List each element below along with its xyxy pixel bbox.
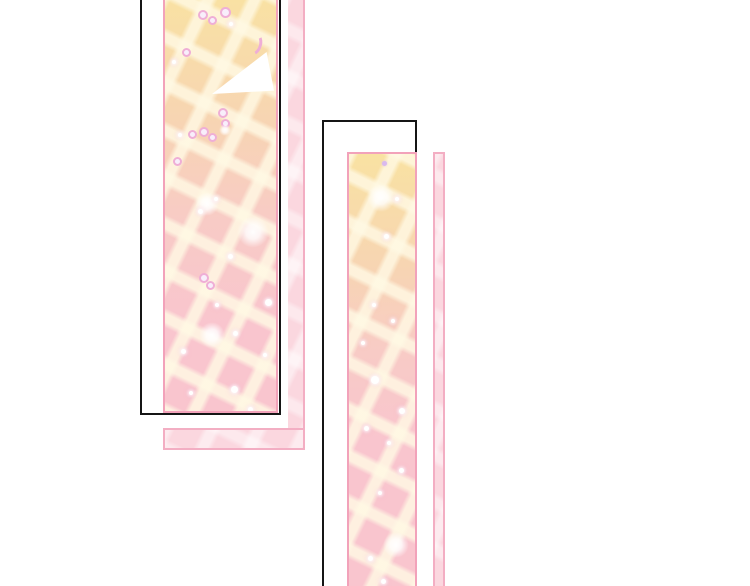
sparkle-icon [248, 407, 253, 412]
sparkle-icon [188, 130, 197, 139]
sparkle-icon [378, 491, 382, 495]
glow-sparkle-icon [199, 322, 225, 348]
panel-a-shadow-right [288, 0, 305, 450]
sparkle-icon [228, 254, 233, 259]
sparkle-icon [214, 197, 218, 201]
sparkle-icon [172, 60, 176, 64]
sparkle-icon [387, 441, 391, 445]
sparkle-icon [371, 376, 379, 384]
sparkle-icon [215, 303, 219, 307]
sparkle-icon [181, 349, 186, 354]
sparkle-icon [208, 133, 217, 142]
sparkle-icon [368, 556, 373, 561]
sparkle-icon [218, 108, 228, 118]
shine-triangle-icon [212, 52, 274, 94]
glow-sparkle-icon [237, 216, 269, 248]
comic-page [0, 0, 750, 586]
panel-b-shadow-right [433, 152, 445, 586]
sparkle-icon [182, 48, 191, 57]
sparkle-icon [229, 22, 233, 26]
sparkle-icon [381, 579, 386, 584]
sparkle-icon [198, 10, 208, 20]
sparkle-icon [399, 408, 405, 414]
sparkle-icon [231, 386, 238, 393]
sparkle-icon [206, 281, 215, 290]
panel-a-shadow-bottom [163, 428, 305, 450]
sparkle-icon [399, 468, 404, 473]
sparkle-icon [220, 7, 231, 18]
sparkle-icon [384, 234, 389, 239]
sparkle-icon [361, 341, 365, 345]
sparkle-icon [391, 319, 395, 323]
sparkle-icon [364, 426, 369, 431]
glow-sparkle-icon [219, 124, 231, 136]
sparkle-icon [233, 331, 238, 336]
sparkle-icon [178, 133, 182, 137]
sparkle-icon [372, 303, 376, 307]
crescent-sparkle-icon [241, 30, 266, 58]
sparkle-icon [173, 157, 182, 166]
glow-sparkle-icon [383, 532, 409, 558]
sparkle-icon [265, 299, 272, 306]
panel-a-artwork [163, 0, 278, 413]
sparkle-icon [263, 353, 267, 357]
sparkle-icon [208, 16, 217, 25]
glow-sparkle-icon [367, 184, 395, 212]
sparkle-icon [382, 161, 387, 166]
sparkle-icon [395, 197, 399, 201]
panel-b-artwork [347, 152, 417, 586]
sparkle-icon [198, 209, 203, 214]
sparkle-icon [189, 391, 193, 395]
